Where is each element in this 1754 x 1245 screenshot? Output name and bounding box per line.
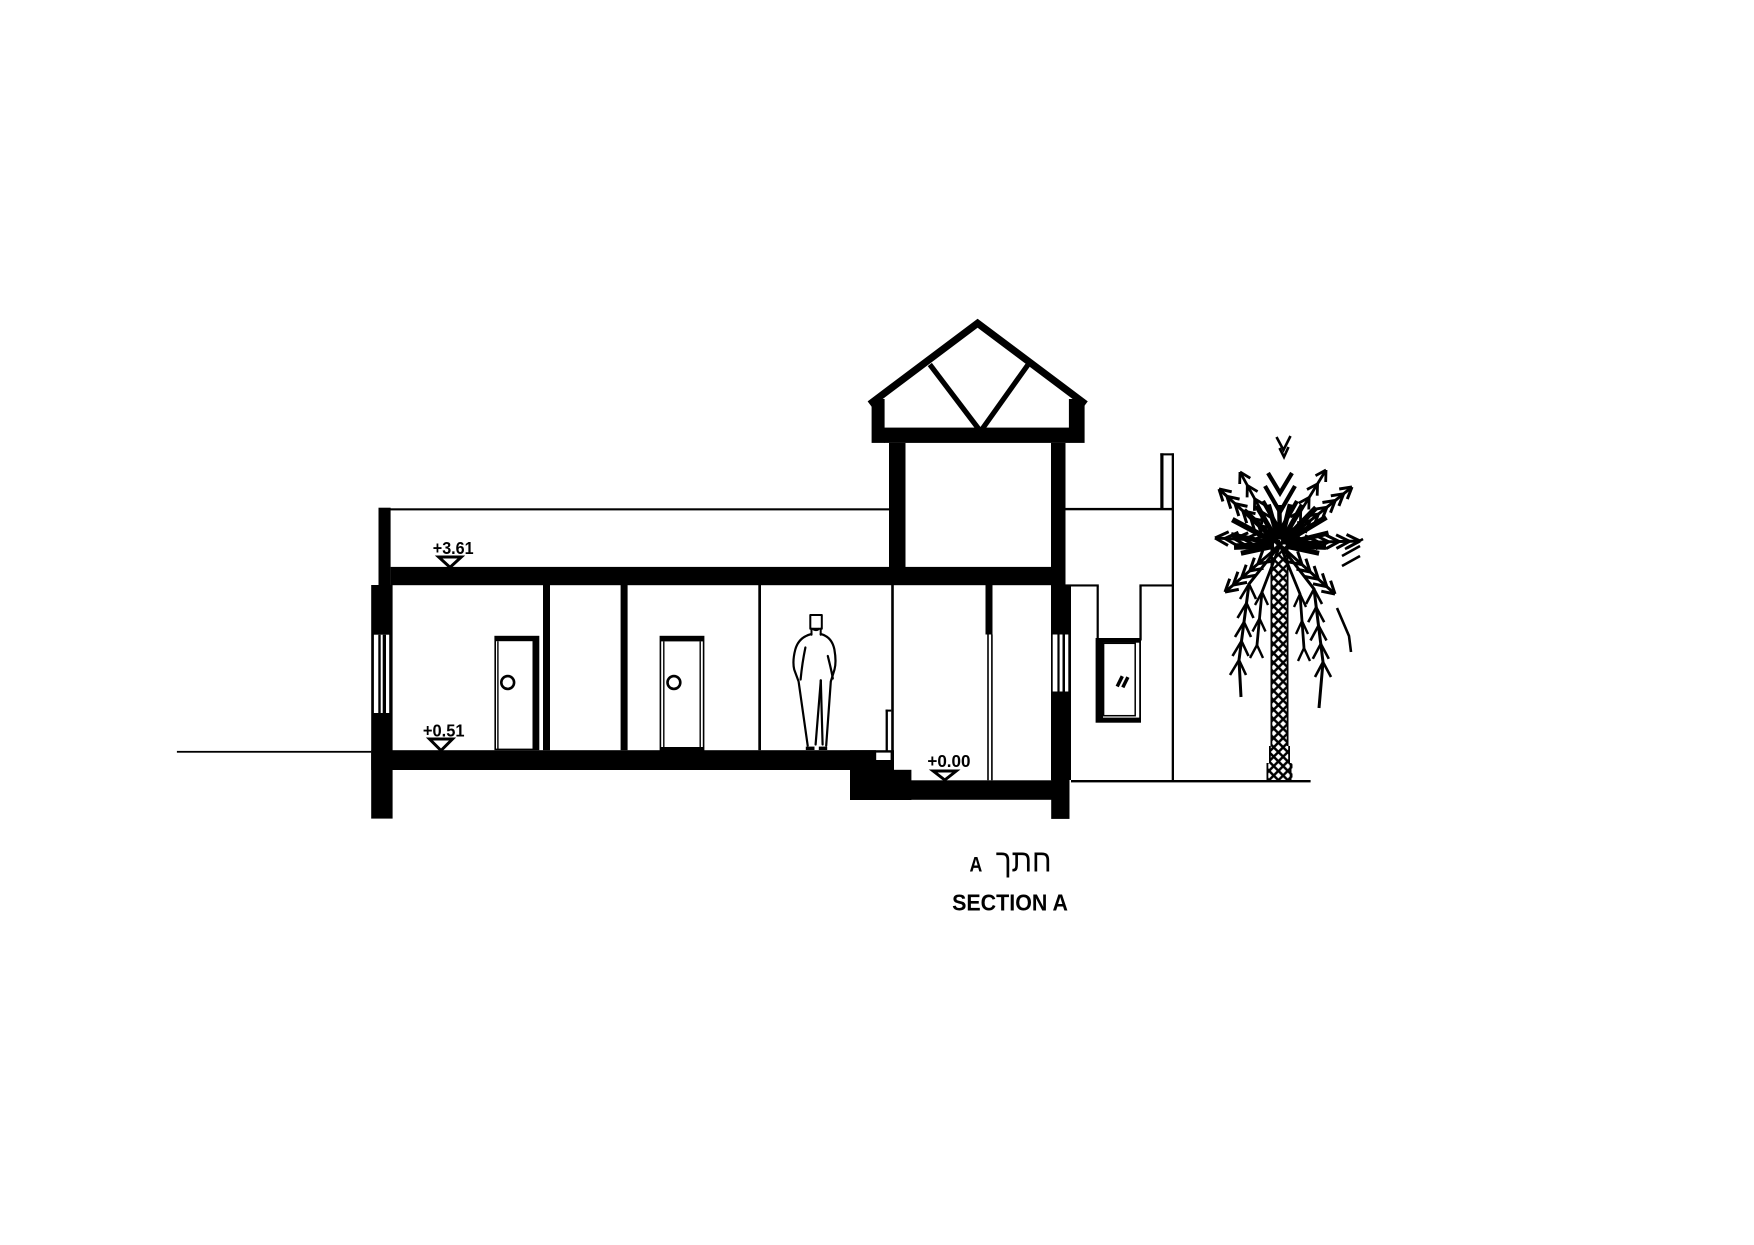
svg-text:SECTION A: SECTION A bbox=[952, 890, 1068, 916]
svg-text:חתך: חתך bbox=[996, 843, 1052, 879]
svg-text:A: A bbox=[970, 853, 983, 876]
svg-text:+0.00: +0.00 bbox=[927, 751, 970, 771]
svg-text:+3.61: +3.61 bbox=[433, 538, 474, 558]
